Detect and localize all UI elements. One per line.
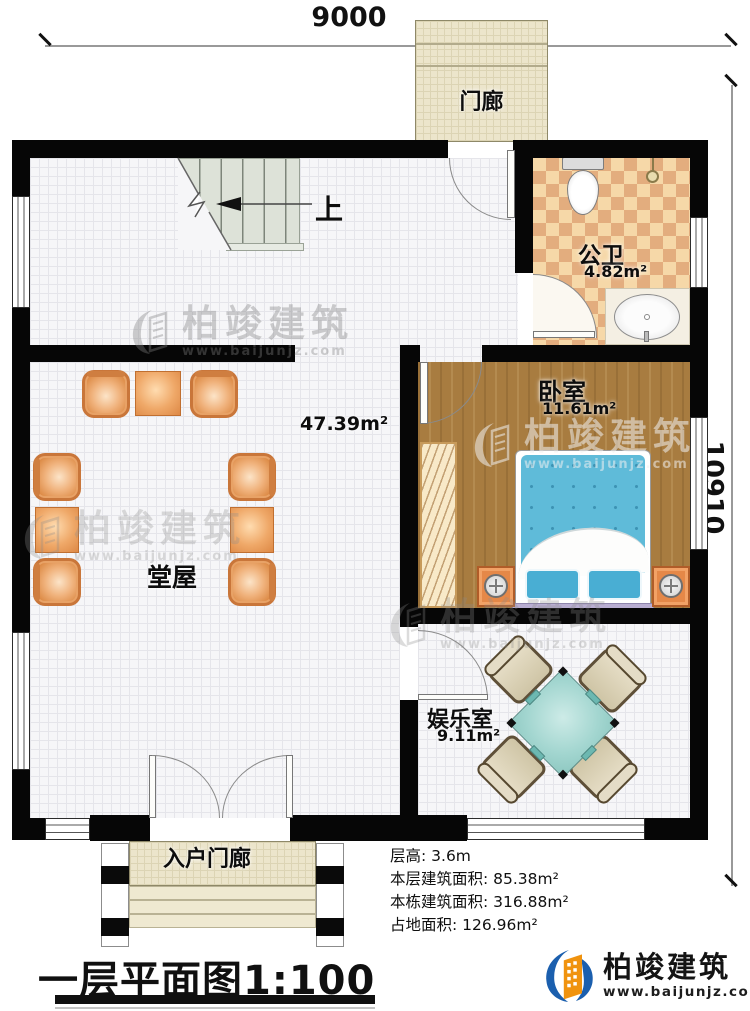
entry-door-leaf xyxy=(507,150,515,218)
wall-bottom xyxy=(290,815,467,841)
info-line-floor-area: 本层建筑面积: 85.38m² xyxy=(390,868,569,891)
top-dimension-label: 9000 xyxy=(299,2,399,33)
wall-top xyxy=(12,140,448,158)
entrance-porch-label: 入户门廊 xyxy=(163,841,251,873)
armchair xyxy=(228,558,276,606)
bathroom-door-leaf xyxy=(533,331,595,338)
info-line-building-area: 本栋建筑面积: 316.88m² xyxy=(390,891,569,914)
sink-drain xyxy=(644,314,650,320)
porch-column-cap xyxy=(316,918,344,936)
staircase xyxy=(178,158,300,248)
entertainment-door-leaf xyxy=(418,694,488,700)
wardrobe xyxy=(420,442,457,608)
info-line-floor-height: 层高: 3.6m xyxy=(390,845,569,868)
bedroom-area: 11.61m² xyxy=(542,399,616,418)
plan-info-block: 层高: 3.6m 本层建筑面积: 85.38m² 本栋建筑面积: 316.88m… xyxy=(390,845,569,937)
wall-bottom xyxy=(12,818,45,840)
hall-area: 47.39m² xyxy=(300,413,388,435)
right-dimension-line xyxy=(731,85,733,886)
pillow xyxy=(525,569,580,600)
porch-step-line xyxy=(416,65,547,67)
brand-block: 柏竣建筑 www.baijunjz.com xyxy=(543,948,750,1004)
brand-logo-icon xyxy=(543,948,595,1004)
stairs-up-label: 上 xyxy=(315,188,343,228)
info-line-footprint-area: 占地面积: 126.96m² xyxy=(390,914,569,937)
wall-top xyxy=(513,140,708,158)
pillow xyxy=(587,569,642,600)
porch-column-cap xyxy=(101,918,129,936)
stair-landing xyxy=(226,243,304,251)
armchair xyxy=(190,370,238,418)
wall-right xyxy=(690,140,708,217)
armchair xyxy=(82,370,130,418)
window xyxy=(12,632,30,770)
wall-bedroom-bottom xyxy=(400,608,708,624)
table-lamp-icon xyxy=(659,574,683,598)
toilet-tank xyxy=(562,157,604,170)
bathroom-area: 4.82m² xyxy=(584,262,647,281)
window xyxy=(45,818,90,840)
armchair xyxy=(228,453,276,501)
side-table xyxy=(230,507,274,553)
entrance-step xyxy=(129,886,316,900)
porch-column-cap xyxy=(101,866,129,884)
wall-bottom xyxy=(645,818,708,840)
side-table xyxy=(135,371,181,416)
window xyxy=(690,217,708,288)
window xyxy=(467,818,645,840)
entrance-step xyxy=(129,914,316,928)
sink-faucet xyxy=(644,331,649,342)
entertainment-area: 9.11m² xyxy=(437,726,500,745)
hall-label: 堂屋 xyxy=(147,558,197,594)
wall-hall-divider xyxy=(12,345,295,362)
top-porch xyxy=(415,20,548,142)
porch-column-cap xyxy=(316,866,344,884)
brand-url: www.baijunjz.com xyxy=(603,984,750,1000)
wall-mid-vertical xyxy=(400,345,418,627)
wall-bathroom-left xyxy=(515,158,533,273)
armchair xyxy=(33,453,81,501)
light-fixture-icon xyxy=(646,170,659,183)
porch-step-line xyxy=(416,43,547,45)
entrance-step xyxy=(129,900,316,914)
brand-name: 柏竣建筑 xyxy=(603,952,750,984)
title-underline-thin xyxy=(55,1007,375,1009)
floor-plan-canvas: 9000 10910 门廊 xyxy=(0,0,750,1011)
top-porch-label: 门廊 xyxy=(415,84,548,116)
bedroom-door-leaf xyxy=(420,362,428,424)
title-underline-thick xyxy=(55,995,375,1004)
wall-bottom xyxy=(90,815,150,841)
side-table xyxy=(35,507,79,553)
wall-bedroom-top xyxy=(482,345,708,362)
top-dimension-line xyxy=(45,45,731,47)
wall-right xyxy=(690,550,708,840)
window xyxy=(690,417,708,550)
window xyxy=(12,196,30,308)
wall-mid-vertical xyxy=(400,700,418,820)
armchair xyxy=(33,558,81,606)
wall-left xyxy=(12,140,30,196)
table-lamp-icon xyxy=(484,574,508,598)
entrance-door-leaf xyxy=(286,755,293,818)
